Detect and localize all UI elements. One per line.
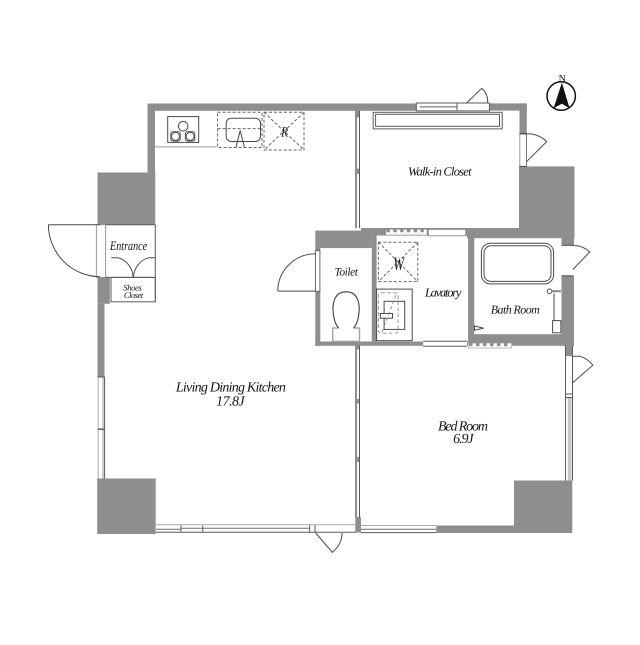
- svg-text:Bath Room: Bath Room: [491, 302, 540, 316]
- svg-text:Closet: Closet: [124, 290, 144, 300]
- svg-text:N: N: [559, 73, 566, 84]
- svg-text:W: W: [393, 254, 405, 275]
- svg-text:6.9J: 6.9J: [453, 432, 474, 447]
- svg-text:Living Dining Kitchen: Living Dining Kitchen: [175, 381, 286, 396]
- svg-text:R: R: [280, 125, 288, 140]
- svg-text:Walk-in Closet: Walk-in Closet: [408, 165, 472, 179]
- svg-text:Lavatory: Lavatory: [424, 285, 462, 299]
- svg-text:17.8J: 17.8J: [216, 395, 245, 410]
- svg-text:Toilet: Toilet: [334, 267, 358, 279]
- svg-text:Entrance: Entrance: [109, 238, 147, 253]
